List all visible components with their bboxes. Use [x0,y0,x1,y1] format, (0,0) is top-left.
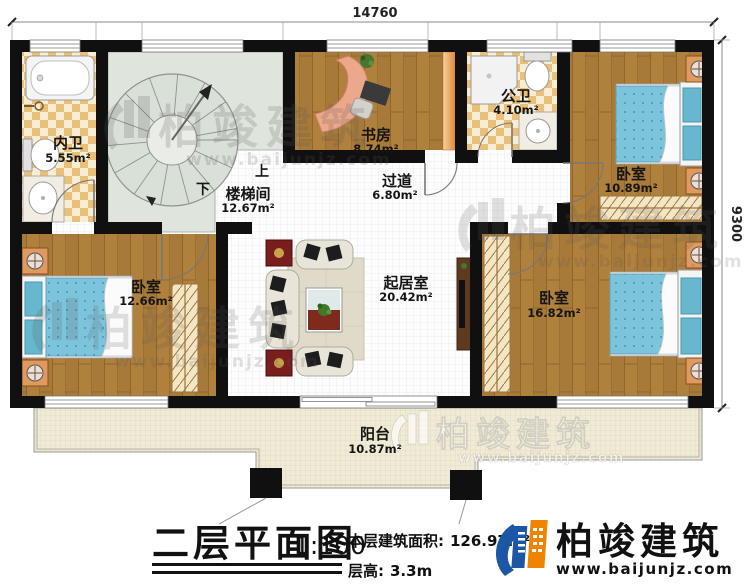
window [142,40,243,52]
window [487,40,572,52]
bathtub [26,56,94,100]
svg-text:柏竣建筑: 柏竣建筑 [158,100,374,154]
svg-text:www.baijunjz.com: www.baijunjz.com [458,450,625,466]
svg-text:柏竣建筑: 柏竣建筑 [86,302,302,356]
svg-text:柏竣建筑: 柏竣建筑 [510,202,726,256]
double-bed-right [610,270,704,358]
room-area-woshi-top: 10.89m² [604,181,657,195]
room-area-neiwei: 5.55m² [45,151,90,165]
svg-text:www.baijunjz.com: www.baijunjz.com [114,352,320,372]
sliding-door [300,396,437,408]
title-underline [152,563,342,566]
window [557,396,688,408]
dimension-top-value: 14760 [352,6,397,21]
window [30,40,80,52]
tv [459,280,465,328]
title-underline [152,571,342,574]
room-area-woshi-right: 16.82m² [527,306,580,320]
room-area-gongwei: 4.10m² [493,103,538,117]
window [45,396,168,408]
window [327,40,428,52]
dimension-right-value: 9300 [728,206,743,242]
leader-line [459,500,466,524]
room-area-woshi-left: 12.66m² [119,294,172,308]
brand-name: 柏竣建筑 [556,520,724,563]
brand-url: www.baijunjz.com [556,560,733,578]
room-area-loutijian: 12.67m² [221,201,274,215]
sink [23,176,64,222]
balcony-post [250,468,282,498]
plant [461,263,467,269]
company-logo: 柏竣建筑 www.baijunjz.com [496,520,733,578]
floor-height-text: 层高:3.3m [348,562,432,580]
toilet [524,52,551,91]
tv-cabinet [457,258,472,350]
room-label-neiwei: 内卫 [53,134,83,152]
leader-line [219,498,266,524]
double-bed-top-right [616,82,704,166]
cabinet [443,52,455,150]
floor-plan-canvas: 柏竣建筑 www.baijunjz.com 柏竣建筑 www.baijunjz.… [0,0,750,586]
room-area-yangtai: 10.87m² [348,442,401,456]
logo-icon [496,520,548,576]
sink [519,112,557,150]
svg-text:www.baijunjz.com: www.baijunjz.com [538,252,744,272]
stair-up-label: 上 [255,164,269,180]
stair-down-label: 下 [196,182,210,198]
svg-text:柏竣建筑: 柏竣建筑 [436,415,596,455]
window [600,40,675,52]
room-area-guodao: 6.80m² [372,188,417,202]
coffee-table [306,288,342,332]
balcony-post [450,470,482,500]
room-area-qijushi: 20.42m² [379,290,432,304]
dimension-top: 14760 [8,6,718,40]
room-label-woshi-right: 卧室 [539,289,569,307]
room-label-yangtai: 阳台 [360,425,390,443]
title-block: 二层平面图 1:100 本层建筑面积:126.97m² 层高:3.3m [152,522,530,580]
floor-plan-page: 柏竣建筑 www.baijunjz.com 柏竣建筑 www.baijunjz.… [0,0,750,586]
room-area-shufang: 8.74m² [353,142,398,156]
